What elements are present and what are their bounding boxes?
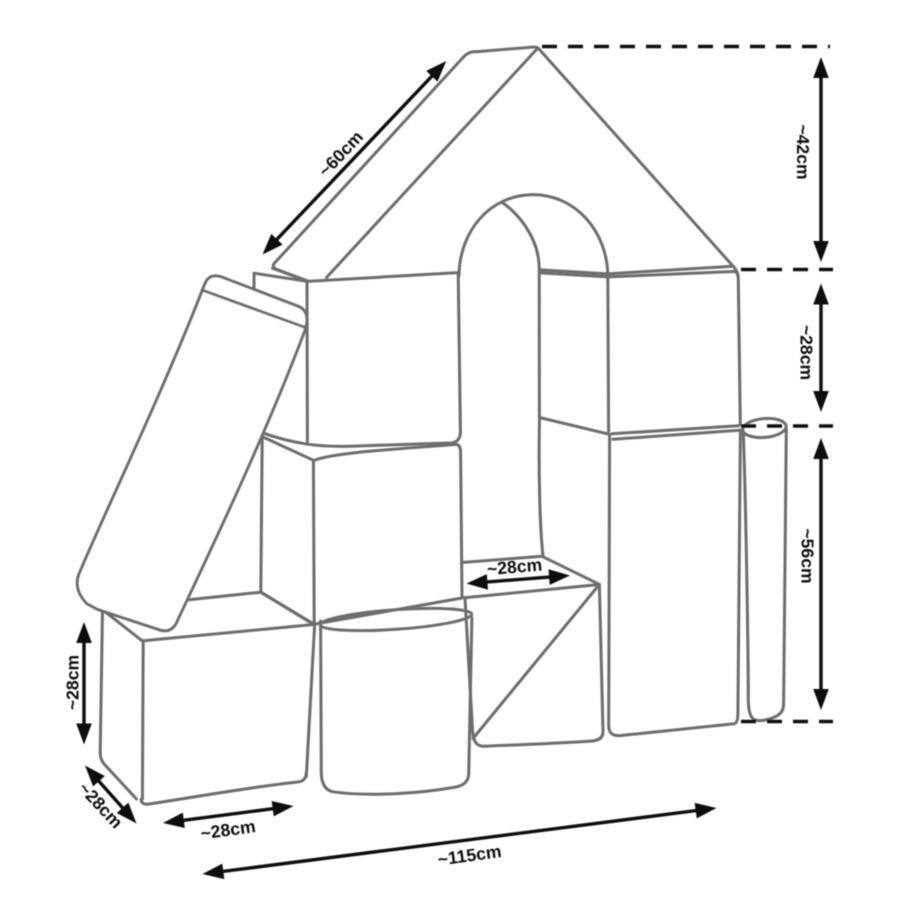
svg-text:~56cm: ~56cm <box>798 528 818 583</box>
svg-text:~28cm: ~28cm <box>199 816 257 843</box>
svg-text:~28cm: ~28cm <box>797 325 817 380</box>
svg-text:~115cm: ~115cm <box>436 841 502 870</box>
svg-text:~42cm: ~42cm <box>793 124 813 179</box>
svg-text:~28cm: ~28cm <box>62 655 82 710</box>
svg-text:~28cm: ~28cm <box>486 554 543 579</box>
